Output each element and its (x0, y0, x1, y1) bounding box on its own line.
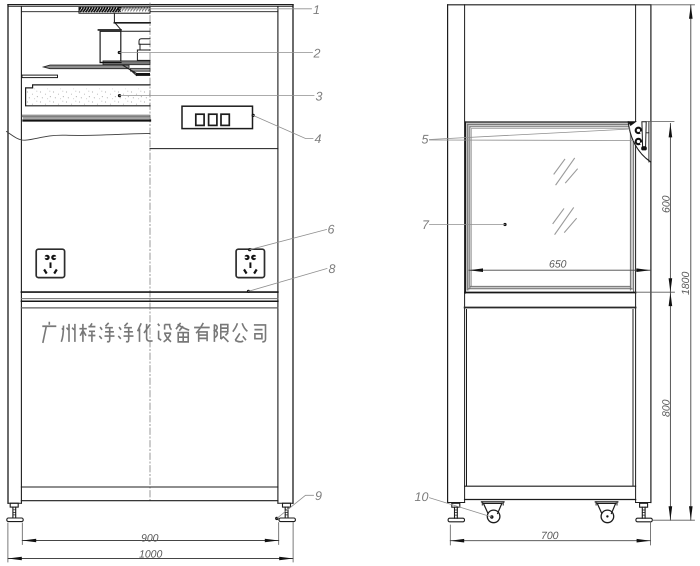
svg-text:5: 5 (422, 133, 429, 147)
svg-text:1000: 1000 (139, 549, 163, 561)
svg-text:9: 9 (315, 489, 322, 503)
svg-text:2: 2 (313, 47, 321, 61)
svg-text:8: 8 (329, 262, 336, 276)
svg-text:1800: 1800 (680, 271, 692, 295)
svg-text:800: 800 (661, 399, 673, 417)
svg-text:7: 7 (422, 218, 430, 232)
svg-text:6: 6 (328, 223, 335, 237)
svg-text:10: 10 (415, 490, 429, 504)
svg-text:900: 900 (141, 533, 159, 545)
svg-text:4: 4 (315, 132, 322, 146)
svg-text:700: 700 (541, 530, 559, 542)
svg-text:650: 650 (549, 259, 567, 271)
svg-text:600: 600 (661, 195, 673, 213)
svg-text:3: 3 (316, 90, 323, 104)
svg-text:1: 1 (313, 3, 320, 17)
